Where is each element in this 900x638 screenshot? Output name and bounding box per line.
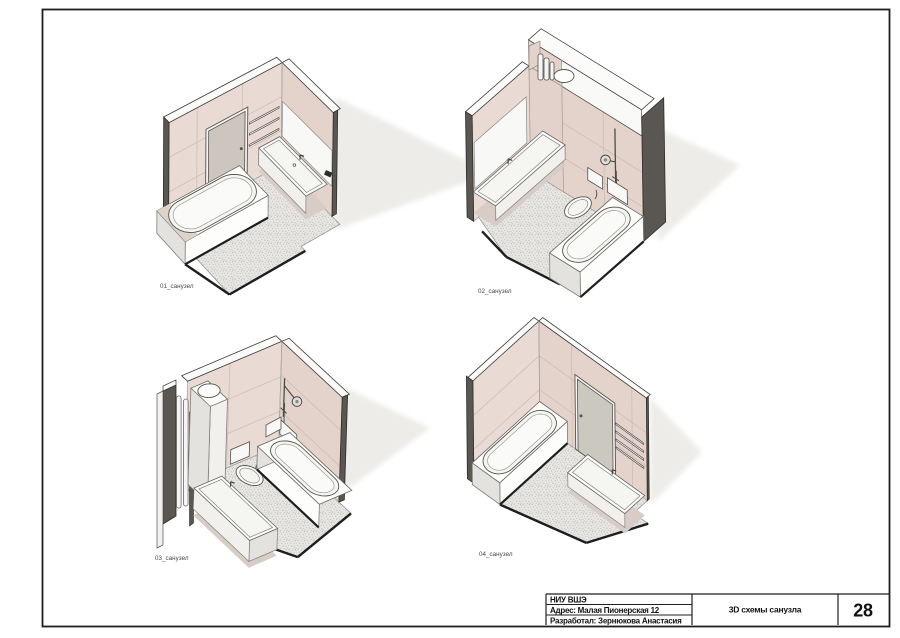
svg-text:03_санузел: 03_санузел [155,555,189,562]
svg-text:28: 28 [853,601,873,621]
svg-text:02_санузел: 02_санузел [478,288,512,295]
svg-text:04_санузел: 04_санузел [479,551,513,558]
svg-text:01_санузел: 01_санузел [160,283,194,290]
svg-text:3D схемы санузла: 3D схемы санузла [729,605,802,615]
svg-text:Разработал: Зернюкова Анастаси: Разработал: Зернюкова Анастасия [550,616,682,625]
svg-text:Адрес: Малая Пионерская 12: Адрес: Малая Пионерская 12 [550,606,660,615]
svg-text:НИУ ВШЭ: НИУ ВШЭ [550,595,587,604]
